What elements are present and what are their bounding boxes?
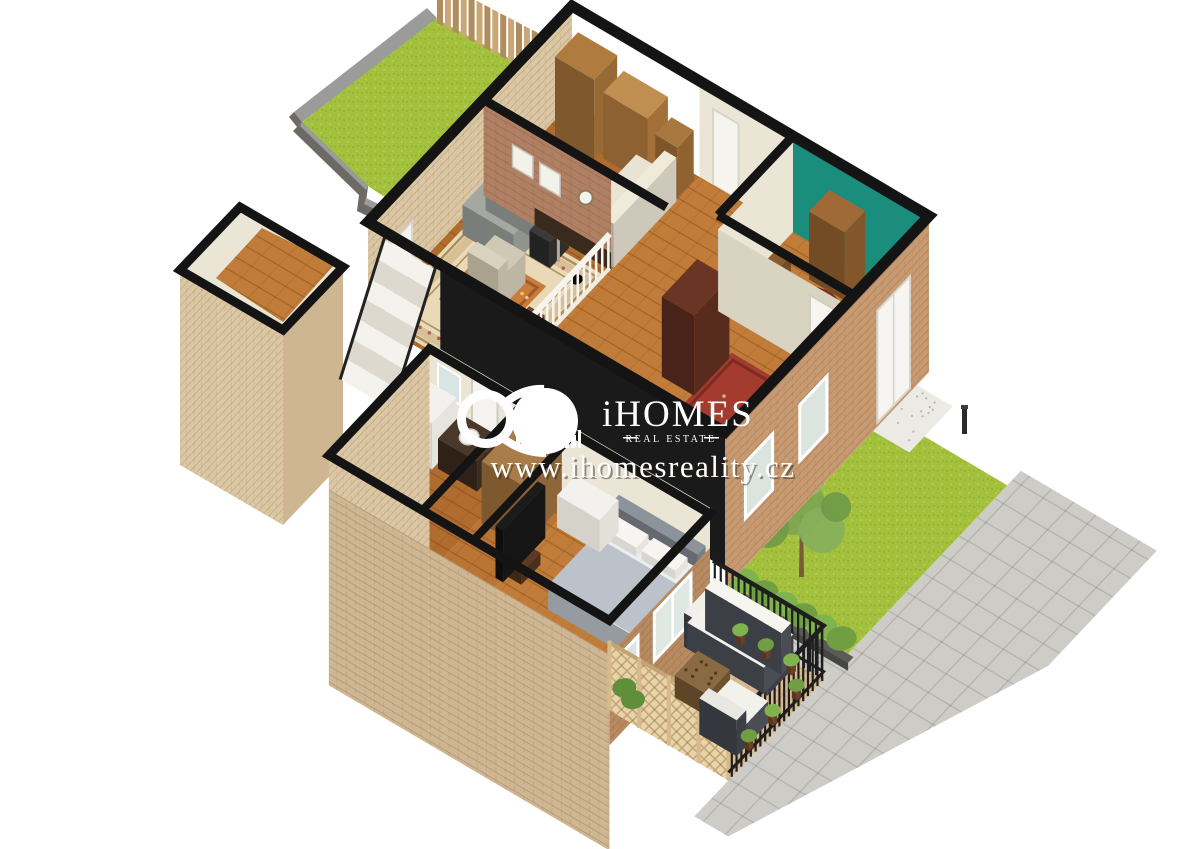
skyline-bar — [550, 415, 556, 448]
skyline-bar — [535, 420, 541, 448]
brand-text: iHOMES — [602, 394, 754, 435]
skyline-bar — [522, 426, 527, 448]
skyline-bar — [516, 434, 520, 448]
skyline-bar — [565, 422, 569, 448]
skyline-bar — [578, 430, 581, 448]
tagline-text: REAL ESTATE — [625, 434, 716, 445]
skyline-bar — [543, 430, 548, 448]
storage-room — [180, 207, 343, 525]
skyline-bar — [571, 435, 576, 448]
skyline-bar — [529, 437, 533, 448]
url-text: www.ihomesreality.cz — [491, 449, 796, 484]
bollard-light — [961, 405, 968, 434]
skyline-bar — [558, 427, 563, 448]
floor-plan-rendering: iHOMES REAL ESTATE www.ihomesreality.cz … — [0, 0, 1200, 849]
isometric-floor-plan: iHOMES REAL ESTATE www.ihomesreality.cz … — [0, 0, 1200, 849]
